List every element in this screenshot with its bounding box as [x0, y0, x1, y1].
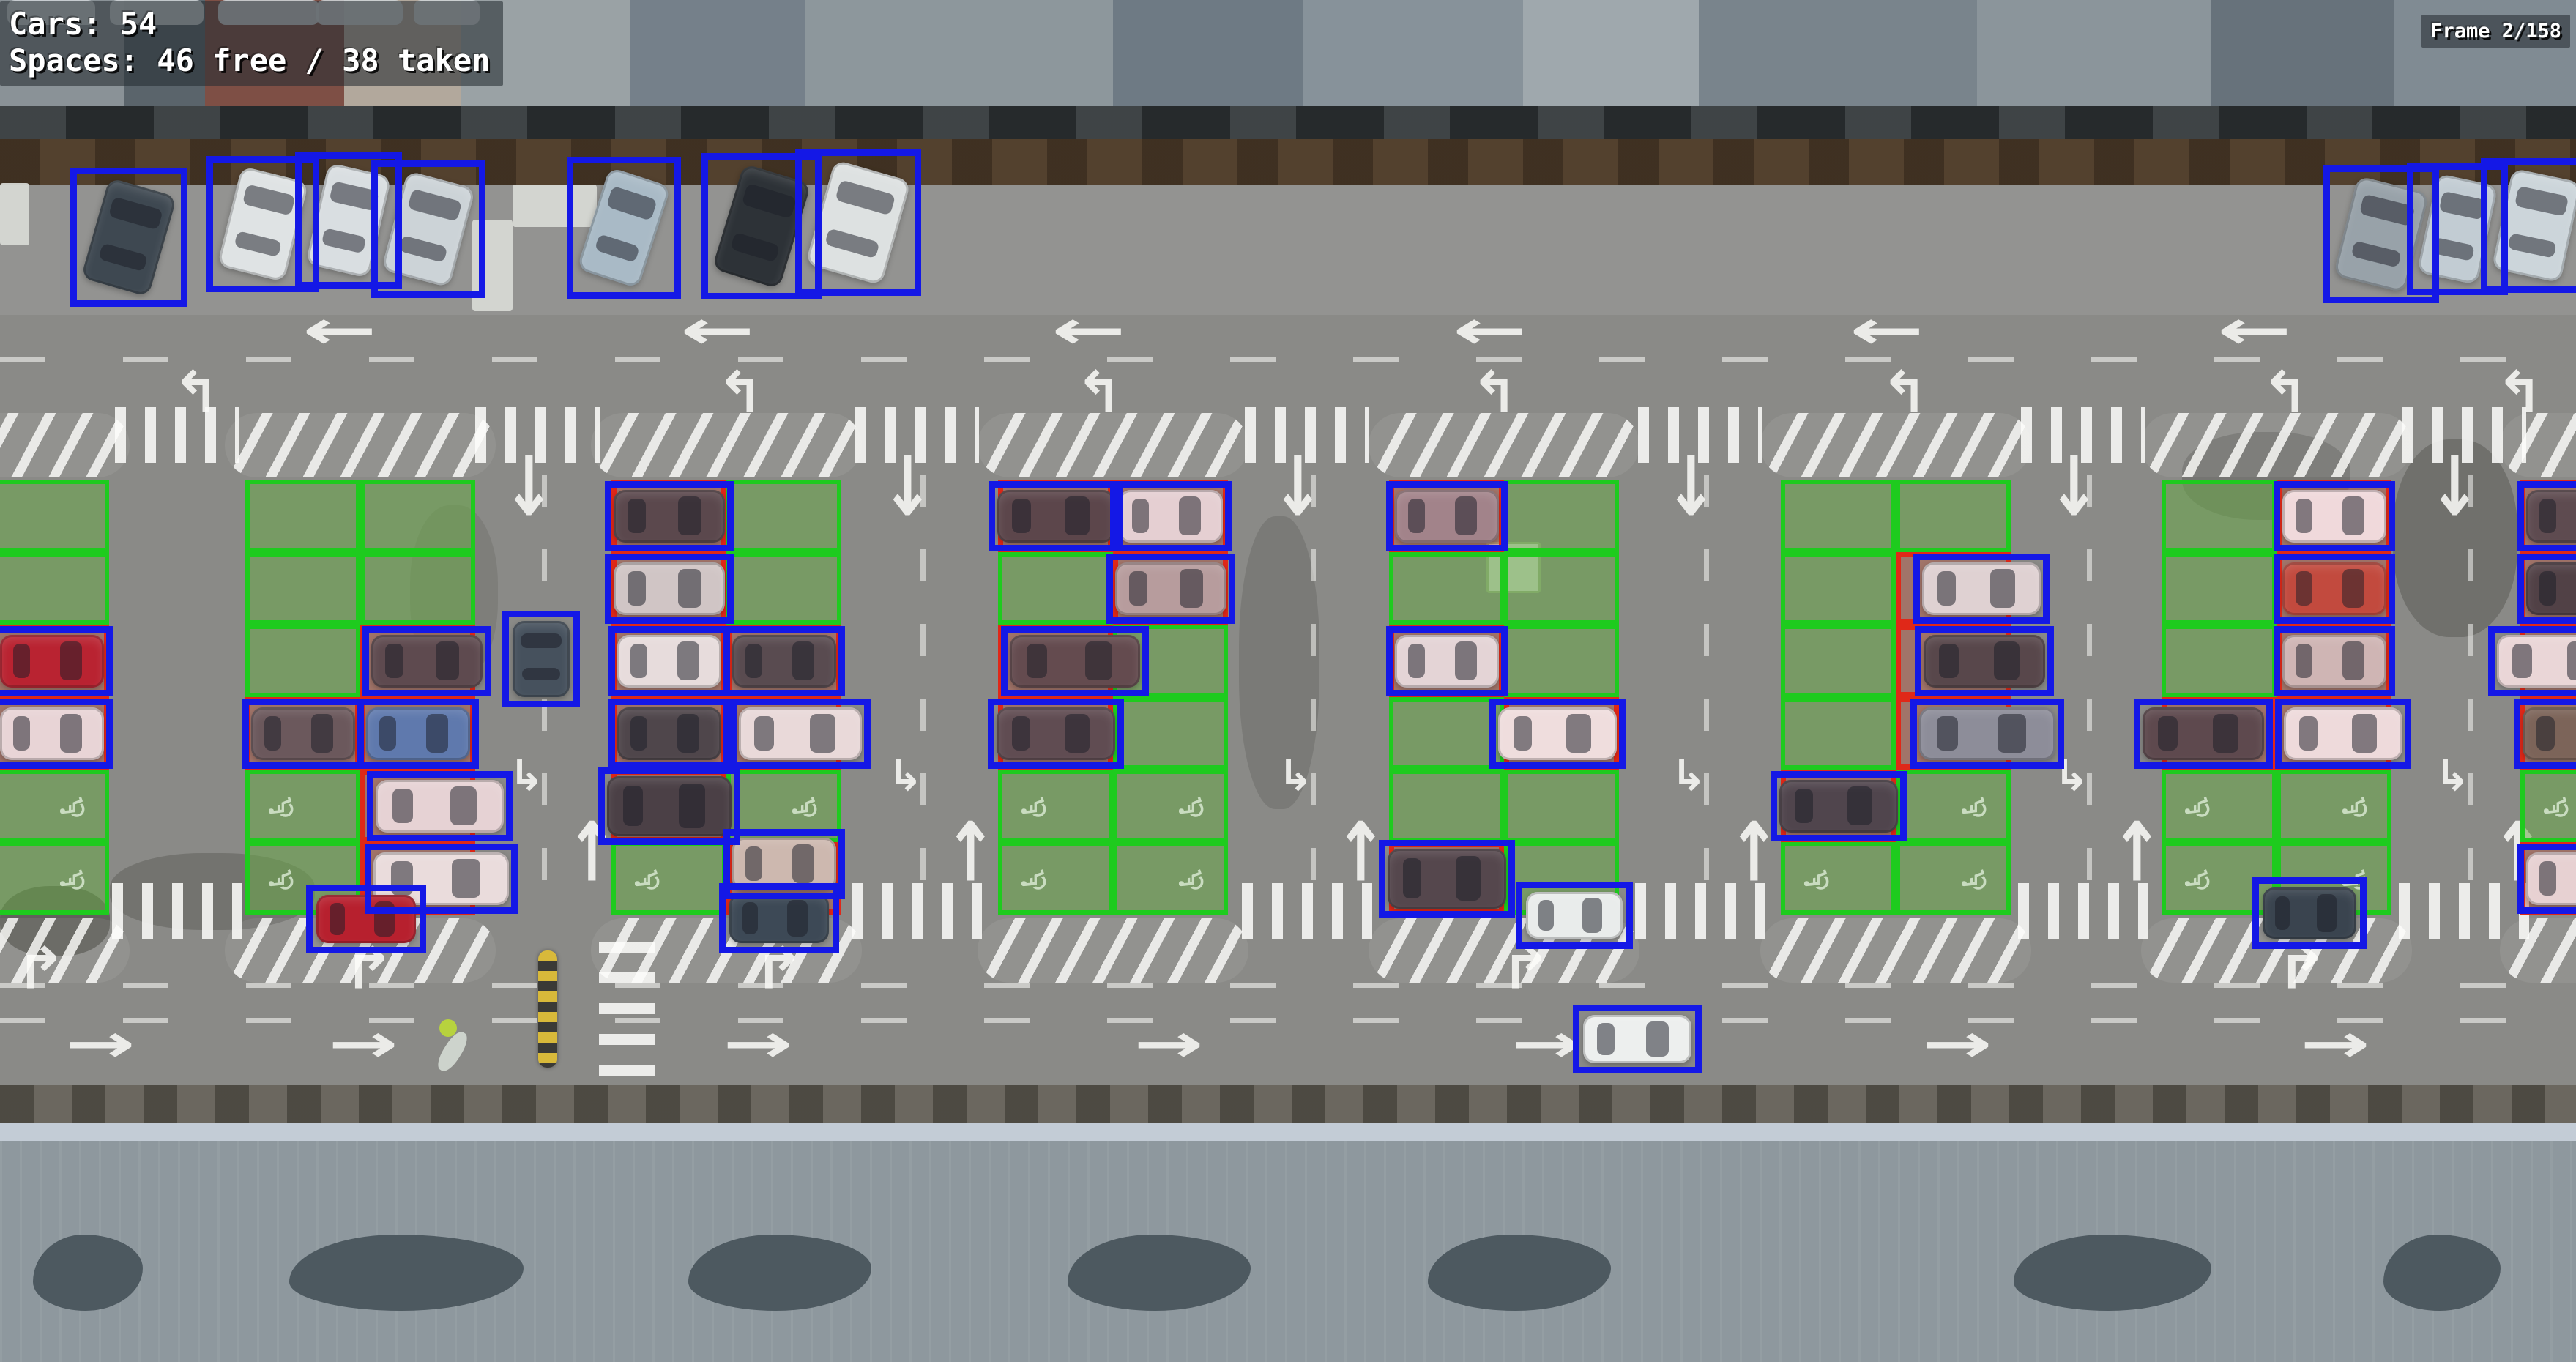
parking-space-free	[726, 480, 841, 552]
car-detection-box	[70, 168, 187, 308]
wheelchair-accessible-icon: ♿	[1015, 864, 1054, 894]
right-arrow-marking: →	[1133, 1018, 1204, 1071]
building-wall-panel	[1523, 0, 1699, 110]
parking-space-free: ♿	[2162, 770, 2277, 842]
building-wall-panel	[630, 0, 805, 110]
frame-counter-overlay: Frame 2/158	[2421, 15, 2570, 48]
car-detection-box	[0, 699, 113, 769]
down-right-hook-arrow-marking: ↳	[509, 754, 545, 797]
give-way-bars-top	[2021, 407, 2145, 463]
left-arrow-marking: ←	[1453, 304, 1527, 358]
car-detection-box	[2134, 699, 2273, 769]
down-right-hook-arrow-marking: ↳	[887, 754, 923, 797]
left-arrow-marking: ←	[1051, 304, 1126, 358]
car-detection-box	[2275, 699, 2411, 769]
parking-space-free: ♿	[0, 842, 109, 915]
car-detection-box	[2517, 481, 2576, 551]
car-detection-box	[2274, 554, 2395, 624]
speed-bump	[538, 950, 557, 1068]
building-wall-panel	[1113, 0, 1303, 110]
car-detection-box	[2481, 158, 2576, 294]
parking-space-free	[1389, 552, 1504, 625]
car-detection-box	[502, 611, 580, 707]
parking-space-free	[1113, 697, 1228, 770]
parking-space-free: ♿	[2277, 770, 2391, 842]
parking-space-free	[1896, 480, 2011, 552]
give-way-bars-top	[1638, 407, 1762, 463]
car-detection-box	[1386, 481, 1508, 551]
parking-space-free	[726, 552, 841, 625]
hatched-no-parking-zone	[591, 413, 862, 477]
up-arrow-marking: ↑	[2110, 811, 2163, 893]
car-detection-box	[1106, 554, 1235, 624]
down-right-hook-arrow-marking: ↳	[1671, 754, 1707, 797]
parking-space-free	[0, 552, 109, 625]
hatched-no-parking-zone	[2141, 413, 2412, 477]
car-detection-box	[730, 699, 871, 769]
car-detection-box	[2488, 626, 2576, 696]
hatched-no-parking-zone	[0, 918, 130, 983]
parking-space-free	[998, 552, 1113, 625]
left-arrow-marking: ←	[2217, 304, 2292, 358]
parking-space-free: ♿	[1781, 842, 1896, 915]
parking-space-free	[1781, 625, 1896, 697]
wheelchair-accessible-icon: ♿	[2537, 792, 2576, 822]
lane-dash-line	[0, 357, 2576, 362]
give-way-bars-bottom	[852, 883, 982, 939]
parking-space-free: ♿	[2520, 770, 2576, 842]
wheelchair-accessible-icon: ♿	[628, 864, 668, 894]
car-detection-box	[598, 767, 740, 845]
car-detection-box	[242, 699, 364, 769]
car-detection-box	[1386, 626, 1508, 696]
parking-space-free: ♿	[998, 770, 1113, 842]
give-way-bars-bottom	[1635, 883, 1765, 939]
right-arrow-marking: →	[65, 1018, 135, 1071]
lane-divider-dashes	[2468, 475, 2473, 911]
parking-space-free: ♿	[1113, 842, 1228, 915]
car-detection-box	[723, 626, 845, 696]
car-detection-box	[306, 885, 426, 953]
white-structure	[0, 183, 29, 245]
car-detection-box	[608, 626, 730, 696]
wheelchair-accessible-icon: ♿	[1954, 864, 1994, 894]
wheelchair-accessible-icon: ♿	[1954, 792, 1994, 822]
parking-space-free	[1389, 770, 1504, 842]
left-arrow-marking: ←	[302, 304, 377, 358]
building-wall-panel	[805, 0, 1113, 110]
wheelchair-accessible-icon: ♿	[53, 792, 92, 822]
right-arrow-marking: →	[1922, 1018, 1992, 1071]
building-wall-panel	[1977, 0, 2211, 110]
building-wall-panel	[2211, 0, 2394, 110]
car-detection-box	[989, 481, 1123, 551]
car-detection-box	[1379, 840, 1515, 918]
car-detection-box	[1573, 1005, 1702, 1073]
parking-space-free: ♿	[0, 770, 109, 842]
wheelchair-accessible-icon: ♿	[53, 864, 92, 894]
parking-space-free: ♿	[611, 842, 726, 915]
down-right-hook-arrow-marking: ↳	[2435, 754, 2471, 797]
building-base-shadow-strip	[0, 106, 2576, 141]
hatched-no-parking-zone	[0, 413, 130, 477]
lane-divider-dashes	[1704, 475, 1709, 911]
parking-space-free	[360, 480, 475, 552]
car-detection-box	[371, 160, 486, 298]
wheelchair-accessible-icon: ♿	[262, 864, 302, 894]
wheelchair-accessible-icon: ♿	[1015, 792, 1054, 822]
car-detection-box	[567, 157, 682, 299]
parking-space-free	[2162, 552, 2277, 625]
wheelchair-accessible-icon: ♿	[2335, 792, 2375, 822]
car-detection-box	[605, 554, 734, 624]
car-detection-box	[1489, 699, 1626, 769]
wheelchair-accessible-icon: ♿	[1172, 864, 1211, 894]
spaces-count-label: Spaces: 46 free / 38 taken	[9, 42, 490, 78]
give-way-bars-top	[1245, 407, 1369, 463]
roof-edge-ridge	[0, 1123, 2576, 1142]
parking-space-free: ♿	[1113, 770, 1228, 842]
hatched-no-parking-zone	[225, 413, 496, 477]
car-detection-box	[1771, 771, 1907, 841]
car-detection-box	[1915, 626, 2054, 696]
hatched-no-parking-zone	[2500, 413, 2576, 477]
hatched-no-parking-zone	[1369, 413, 1639, 477]
parking-space-free: ♿	[998, 842, 1113, 915]
cars-count-label: Cars: 54	[9, 6, 157, 42]
car-detection-box	[0, 626, 113, 696]
hatched-no-parking-zone	[978, 918, 1248, 983]
curb-rubble-strip	[0, 1085, 2576, 1125]
car-detection-box	[1516, 882, 1633, 949]
car-detection-box	[1913, 554, 2050, 624]
car-detection-box	[2517, 844, 2576, 914]
wheelchair-accessible-icon: ♿	[1172, 792, 1211, 822]
parking-space-free	[2162, 480, 2277, 552]
right-arrow-marking: →	[1511, 1018, 1582, 1071]
parking-space-free: ♿	[245, 770, 360, 842]
car-detection-box	[2514, 699, 2576, 769]
hatched-no-parking-zone	[1760, 413, 2031, 477]
car-detection-box	[2274, 626, 2395, 696]
give-way-bars-bottom	[2018, 883, 2148, 939]
parking-space-free	[245, 625, 360, 697]
down-right-hook-arrow-marking: ↳	[1278, 754, 1314, 797]
car-detection-box	[367, 771, 513, 841]
stats-overlay: Cars: 54 Spaces: 46 free / 38 taken	[0, 1, 503, 86]
car-detection-box	[719, 883, 839, 953]
lane-divider-dashes	[2087, 475, 2092, 911]
hatched-no-parking-zone	[978, 413, 1248, 477]
parking-space-free	[1781, 480, 1896, 552]
lane-dash-line	[0, 1018, 2576, 1023]
right-arrow-marking: →	[723, 1018, 793, 1071]
building-wall-panel	[1303, 0, 1523, 110]
car-detection-box	[2252, 877, 2367, 949]
car-detection-box	[362, 626, 491, 696]
car-detection-box	[795, 149, 922, 296]
car-detection-box	[1110, 481, 1232, 551]
wheelchair-accessible-icon: ♿	[262, 792, 302, 822]
parking-space-free	[1504, 552, 1619, 625]
car-detection-box	[605, 481, 734, 551]
aerial-parking-detection-view: ←←←←←←↰↰↰↰↰↰↰↓↓↓↓↓↓↳↳↳↳↳↳↑↑↑↑↑↑↱↱↱↱↱→→→→…	[0, 0, 2576, 1362]
car-detection-box	[1910, 699, 2064, 769]
car-detection-box	[1001, 626, 1149, 696]
right-arrow-marking: →	[328, 1018, 398, 1071]
wheelchair-accessible-icon: ♿	[2178, 792, 2218, 822]
parking-space-free: ♿	[1896, 770, 2011, 842]
parking-space-free	[0, 480, 109, 552]
parking-space-free	[1504, 480, 1619, 552]
parking-space-free	[1504, 625, 1619, 697]
parking-space-free	[1781, 697, 1896, 770]
parking-space-free	[245, 552, 360, 625]
hatched-no-parking-zone	[1760, 918, 2031, 983]
parking-space-free	[1504, 770, 1619, 842]
parking-space-free	[1389, 697, 1504, 770]
car-detection-box	[2274, 481, 2395, 551]
parking-space-free	[2162, 625, 2277, 697]
give-way-bars-top	[855, 407, 979, 463]
car-detection-box	[608, 699, 730, 769]
left-arrow-marking: ←	[1850, 304, 1924, 358]
lane-divider-dashes	[1311, 475, 1316, 911]
parking-space-free: ♿	[1896, 842, 2011, 915]
wheelchair-accessible-icon: ♿	[2178, 864, 2218, 894]
give-way-bars-bottom	[112, 883, 242, 939]
up-arrow-marking: ↑	[944, 811, 997, 893]
hatched-no-parking-zone	[2500, 918, 2576, 983]
car-detection-box	[357, 699, 479, 769]
wheelchair-accessible-icon: ♿	[1798, 864, 1837, 894]
lane-dash-line	[0, 983, 2576, 988]
building-wall-panel	[1699, 0, 1977, 110]
parking-space-free	[360, 552, 475, 625]
parking-space-free	[1781, 552, 1896, 625]
car-detection-box	[2517, 554, 2576, 624]
lane-divider-dashes	[920, 475, 926, 911]
give-way-bars-top	[115, 407, 239, 463]
left-arrow-marking: ←	[680, 304, 755, 358]
car-detection-box	[988, 699, 1124, 769]
wheelchair-accessible-icon: ♿	[785, 792, 824, 822]
parking-space-free	[245, 480, 360, 552]
right-arrow-marking: →	[2300, 1018, 2370, 1071]
give-way-bars-bottom	[1242, 883, 1372, 939]
